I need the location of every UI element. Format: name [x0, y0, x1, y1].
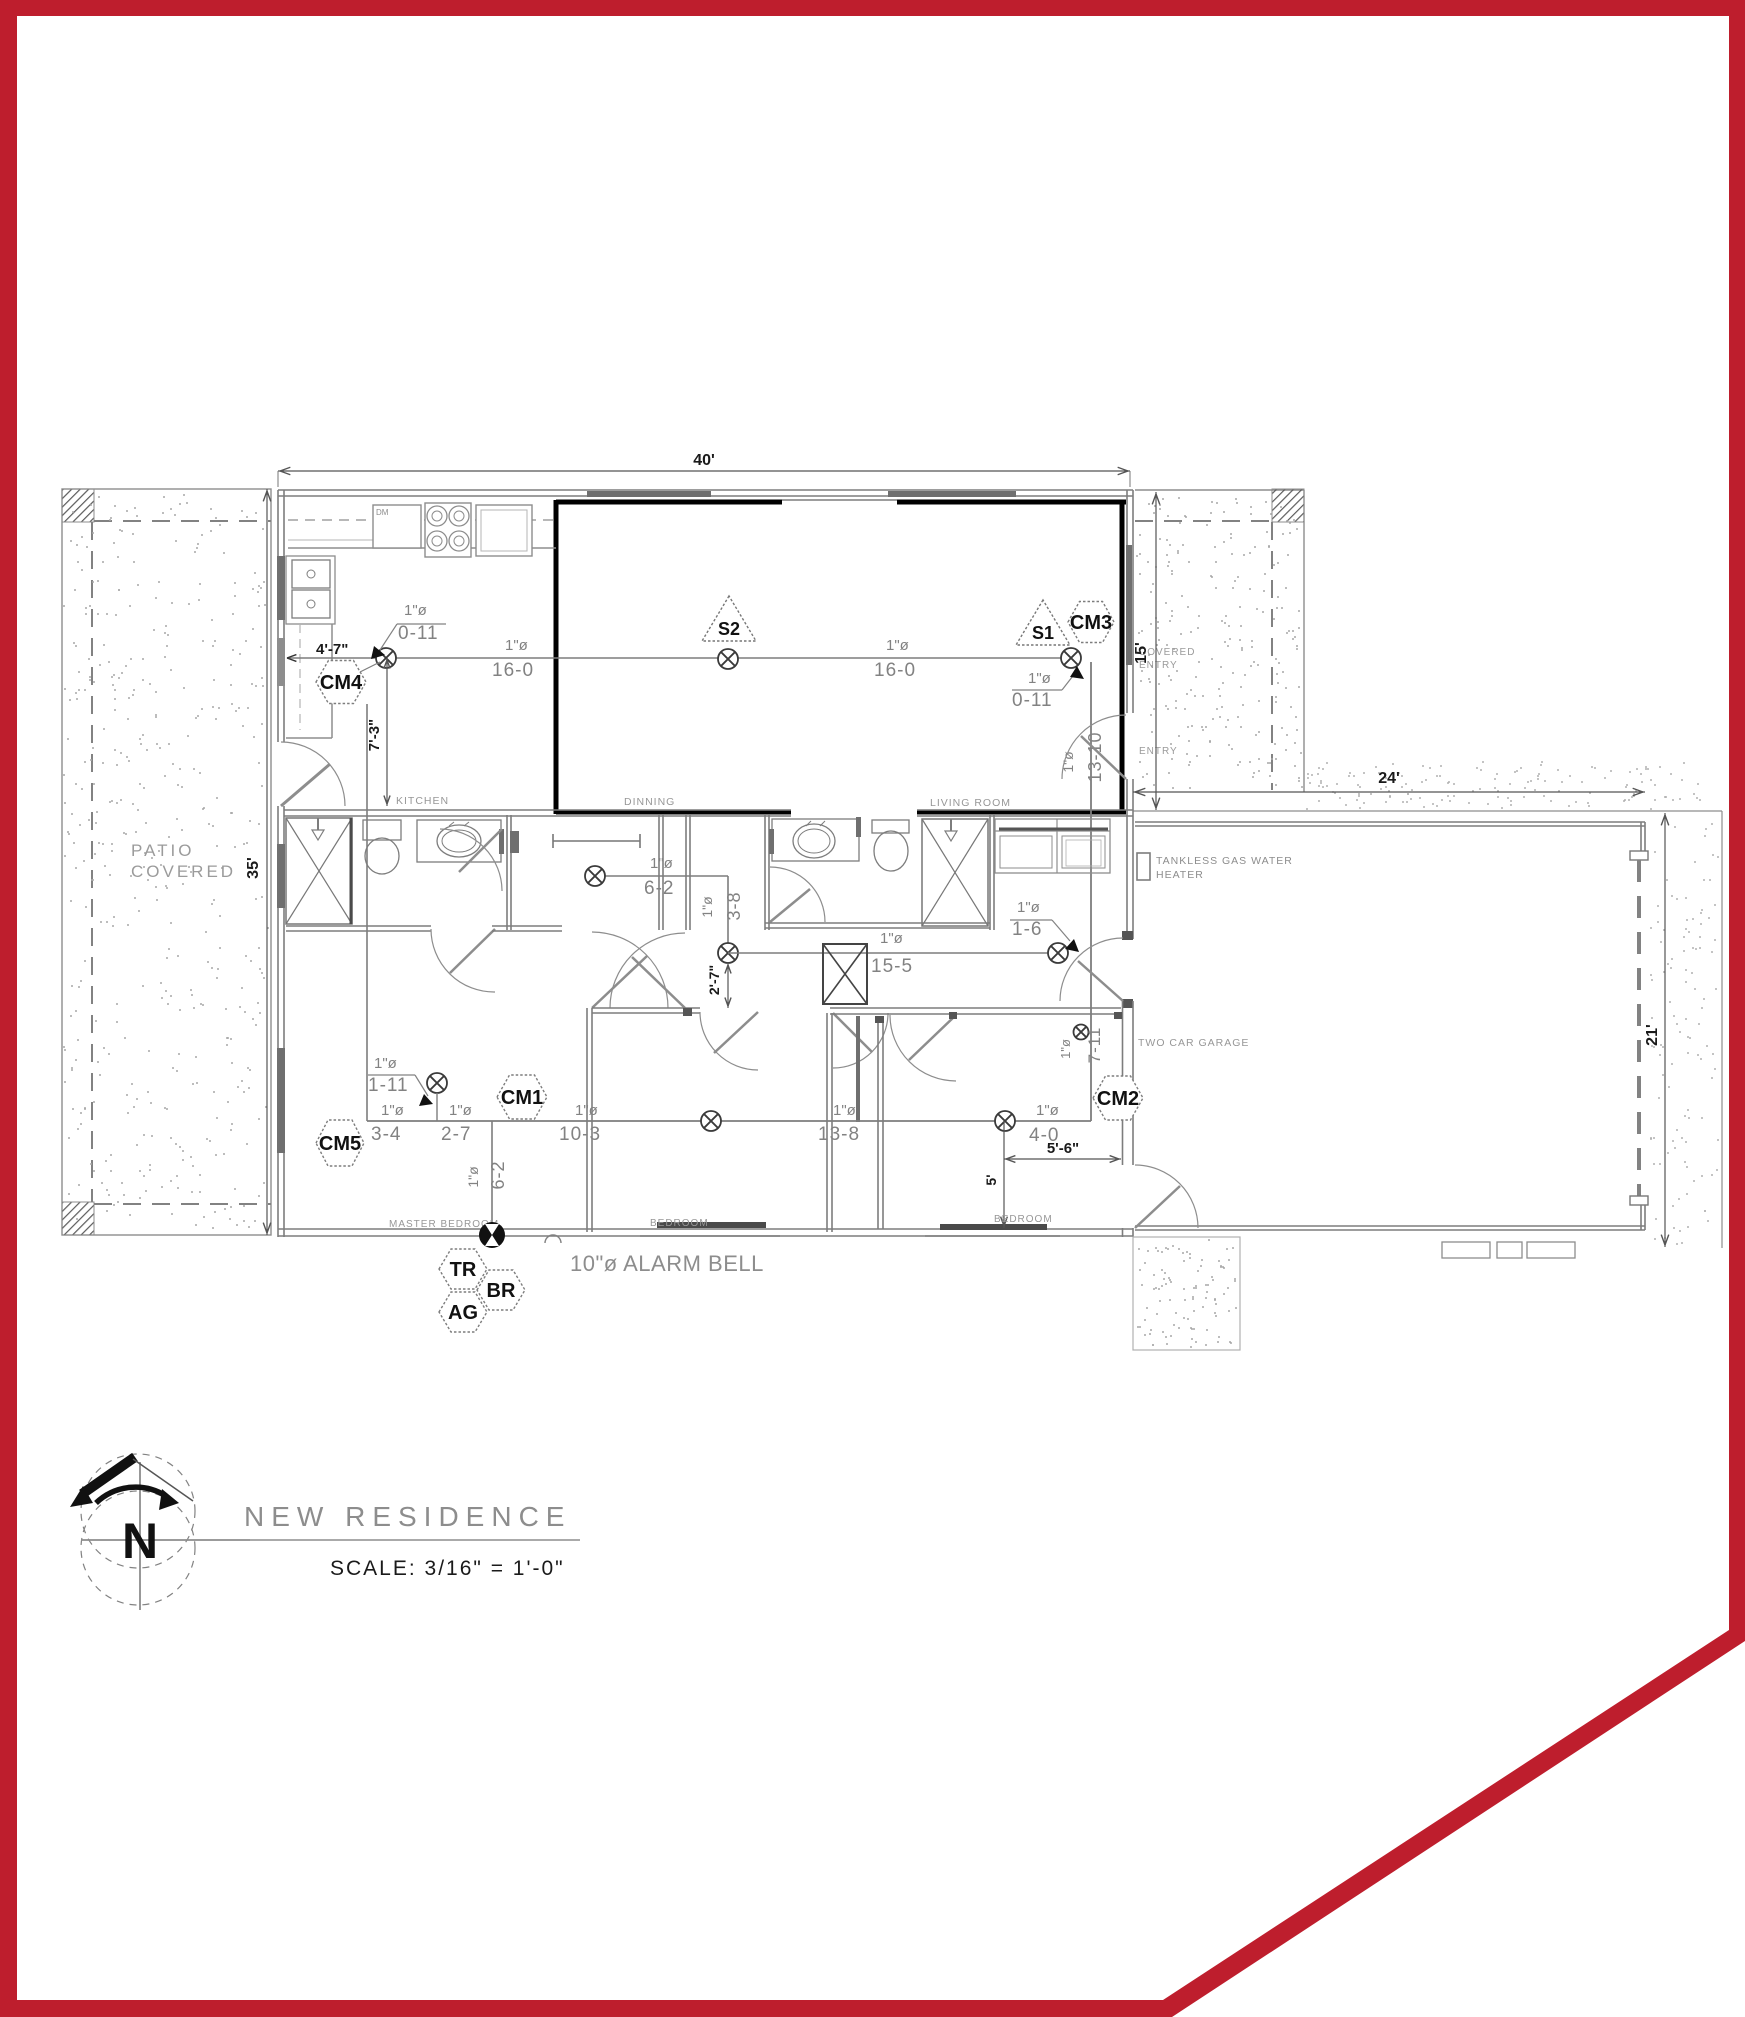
- svg-text:7-11: 7-11: [1085, 1027, 1104, 1064]
- svg-text:SCALE: 3/16" = 1'-0": SCALE: 3/16" = 1'-0": [330, 1557, 565, 1580]
- svg-text:1"ø: 1"ø: [374, 1055, 397, 1072]
- svg-text:3-8: 3-8: [724, 891, 744, 920]
- svg-text:CM5: CM5: [319, 1133, 361, 1155]
- svg-text:0-11: 0-11: [1012, 690, 1053, 711]
- svg-text:0-11: 0-11: [398, 623, 439, 644]
- svg-text:TANKLESS GAS WATER: TANKLESS GAS WATER: [1156, 855, 1293, 867]
- svg-text:24': 24': [1378, 770, 1400, 787]
- svg-text:CM3: CM3: [1070, 612, 1112, 634]
- svg-text:1"ø: 1"ø: [575, 1102, 598, 1119]
- svg-text:TWO CAR GARAGE: TWO CAR GARAGE: [1138, 1037, 1249, 1049]
- svg-text:16-0: 16-0: [874, 660, 916, 681]
- svg-text:21': 21': [1644, 1024, 1661, 1046]
- svg-text:13-8: 13-8: [818, 1124, 860, 1145]
- svg-text:2'-7": 2'-7": [706, 965, 722, 995]
- svg-text:15-5: 15-5: [871, 956, 913, 977]
- svg-text:1"ø: 1"ø: [449, 1102, 472, 1119]
- svg-text:BEDROOM: BEDROOM: [650, 1218, 709, 1229]
- svg-text:6-2: 6-2: [644, 878, 674, 899]
- svg-text:1"ø: 1"ø: [381, 1102, 404, 1119]
- svg-text:1"ø: 1"ø: [505, 637, 528, 654]
- svg-text:1"ø: 1"ø: [465, 1166, 481, 1188]
- svg-text:DINNING: DINNING: [624, 796, 675, 808]
- svg-text:16-0: 16-0: [492, 660, 534, 681]
- svg-text:PATIO: PATIO: [131, 841, 195, 860]
- svg-text:CM2: CM2: [1097, 1088, 1139, 1110]
- svg-text:HEATER: HEATER: [1156, 869, 1204, 881]
- svg-text:6-2: 6-2: [488, 1160, 508, 1189]
- svg-text:BR: BR: [487, 1280, 516, 1302]
- svg-text:1"ø: 1"ø: [650, 855, 673, 872]
- svg-text:CM4: CM4: [320, 672, 363, 694]
- svg-text:5': 5': [983, 1174, 999, 1185]
- svg-text:KITCHEN: KITCHEN: [396, 795, 449, 807]
- svg-text:3-4: 3-4: [371, 1124, 401, 1145]
- svg-text:LIVING ROOM: LIVING ROOM: [930, 797, 1011, 809]
- svg-text:COVERED: COVERED: [131, 862, 236, 881]
- svg-text:1"ø: 1"ø: [1058, 1039, 1073, 1059]
- svg-text:BEDROOM: BEDROOM: [994, 1214, 1053, 1225]
- svg-text:2-7: 2-7: [441, 1124, 471, 1145]
- svg-text:1-11: 1-11: [368, 1075, 409, 1096]
- svg-text:10"ø ALARM BELL: 10"ø ALARM BELL: [570, 1251, 764, 1276]
- svg-text:1"ø: 1"ø: [1028, 670, 1051, 687]
- svg-text:ENTRY: ENTRY: [1139, 746, 1178, 757]
- svg-text:1"ø: 1"ø: [1036, 1102, 1059, 1119]
- svg-text:1-6: 1-6: [1012, 919, 1042, 940]
- svg-text:CM1: CM1: [501, 1087, 543, 1109]
- svg-text:NEW RESIDENCE: NEW RESIDENCE: [244, 1501, 571, 1532]
- svg-text:1"ø: 1"ø: [833, 1102, 856, 1119]
- svg-text:40': 40': [693, 452, 715, 469]
- svg-text:AG: AG: [448, 1302, 478, 1324]
- svg-text:TR: TR: [450, 1259, 477, 1281]
- svg-text:15': 15': [1133, 642, 1150, 664]
- svg-text:5'-6": 5'-6": [1047, 1140, 1079, 1157]
- svg-text:N: N: [122, 1513, 158, 1569]
- svg-text:S2: S2: [718, 619, 740, 639]
- svg-text:4'-7": 4'-7": [316, 641, 348, 658]
- svg-text:1"ø: 1"ø: [886, 637, 909, 654]
- svg-text:1"ø: 1"ø: [699, 896, 715, 918]
- svg-text:7'-3": 7'-3": [366, 719, 383, 751]
- svg-text:1"ø: 1"ø: [404, 602, 427, 619]
- svg-text:10-3: 10-3: [559, 1124, 601, 1145]
- svg-text:DM: DM: [376, 508, 389, 517]
- svg-text:1"ø: 1"ø: [1017, 899, 1040, 916]
- svg-text:35': 35': [245, 857, 262, 879]
- svg-text:S1: S1: [1032, 623, 1054, 643]
- svg-text:1"ø: 1"ø: [880, 930, 903, 947]
